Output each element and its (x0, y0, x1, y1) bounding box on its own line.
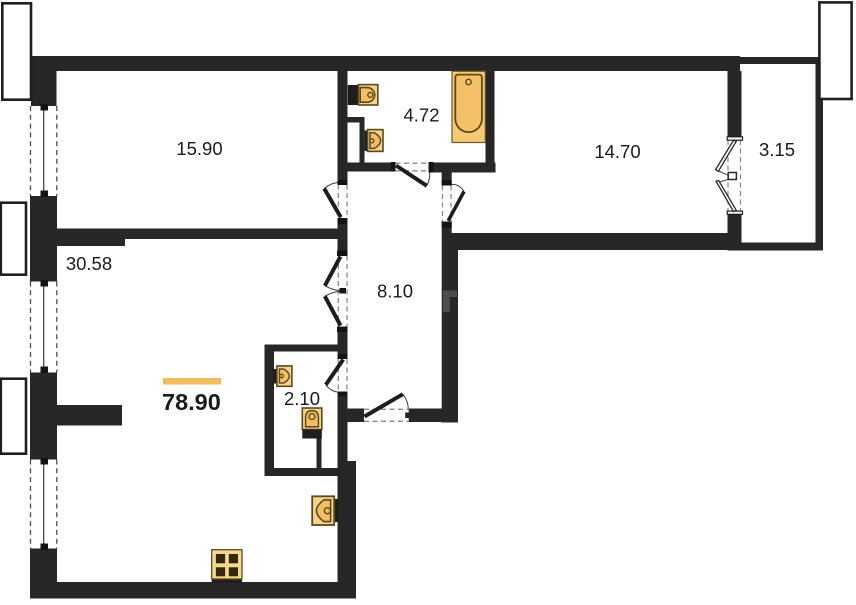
svg-text:30.58: 30.58 (66, 253, 112, 274)
svg-text:3.15: 3.15 (759, 139, 795, 160)
svg-text:78.90: 78.90 (162, 389, 221, 415)
svg-text:14.70: 14.70 (594, 141, 640, 162)
svg-text:15.90: 15.90 (176, 138, 222, 159)
svg-text:8.10: 8.10 (377, 281, 413, 302)
svg-text:4.72: 4.72 (403, 105, 439, 126)
svg-text:2.10: 2.10 (284, 388, 320, 409)
